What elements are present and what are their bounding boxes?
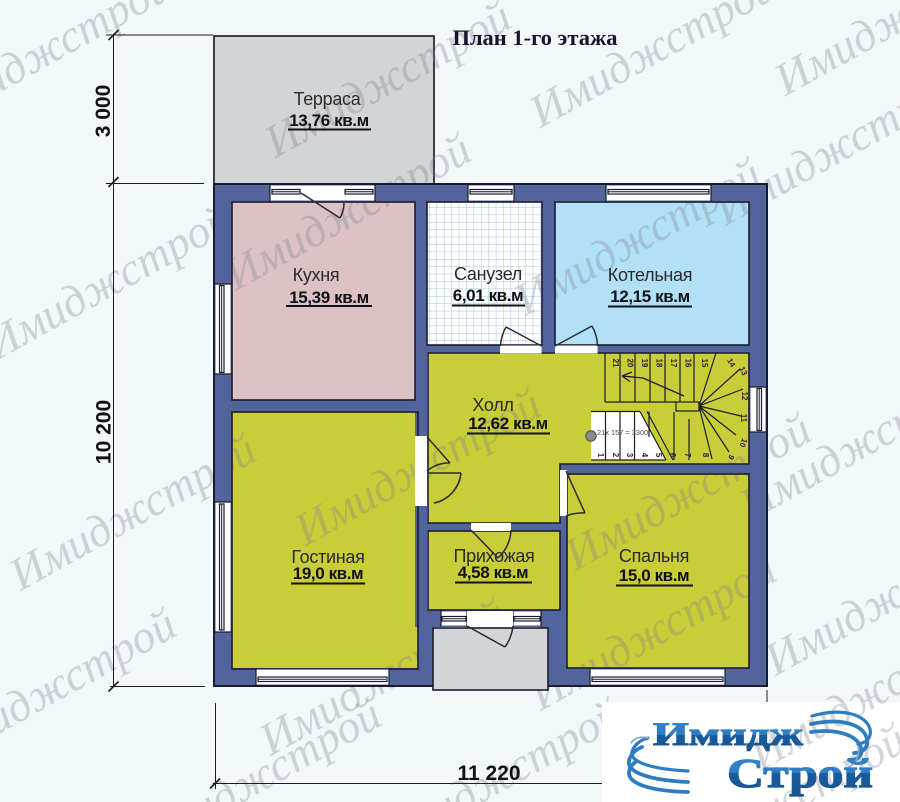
svg-text:21: 21 (611, 359, 620, 368)
svg-text:6: 6 (668, 453, 677, 458)
svg-text:4: 4 (640, 453, 649, 458)
svg-text:Кухня: Кухня (293, 265, 340, 285)
svg-text:11 220: 11 220 (457, 762, 520, 785)
svg-text:4,58 кв.м: 4,58 кв.м (458, 563, 528, 582)
svg-text:15,0 кв.м: 15,0 кв.м (619, 566, 689, 585)
svg-text:2: 2 (611, 453, 620, 458)
svg-text:17: 17 (669, 359, 678, 368)
svg-text:20: 20 (626, 359, 635, 368)
svg-text:3: 3 (625, 453, 634, 458)
svg-text:19: 19 (640, 359, 649, 368)
svg-text:План 1-го этажа: План 1-го этажа (452, 25, 617, 50)
svg-text:Санузел: Санузел (454, 264, 522, 284)
svg-text:3 000: 3 000 (92, 85, 115, 138)
svg-text:6,01 кв.м: 6,01 кв.м (453, 286, 523, 305)
svg-text:15,39 кв.м: 15,39 кв.м (289, 288, 369, 307)
svg-text:18: 18 (655, 359, 664, 368)
svg-text:8: 8 (701, 453, 710, 458)
svg-text:7: 7 (683, 453, 692, 457)
svg-text:Спальня: Спальня (619, 546, 689, 566)
svg-text:5: 5 (654, 453, 663, 458)
svg-text:Терраса: Терраса (294, 89, 362, 109)
svg-text:19,0 кв.м: 19,0 кв.м (293, 564, 363, 583)
svg-text:12,15 кв.м: 12,15 кв.м (610, 287, 690, 306)
svg-text:13,76 кв.м: 13,76 кв.м (289, 111, 369, 130)
svg-text:12,62 кв.м: 12,62 кв.м (468, 414, 548, 433)
svg-text:15: 15 (700, 359, 709, 368)
svg-text:11: 11 (739, 414, 748, 423)
svg-text:Котельная: Котельная (608, 265, 692, 285)
svg-text:16: 16 (684, 359, 693, 368)
svg-text:Строй: Строй (727, 750, 873, 796)
svg-text:10 200: 10 200 (93, 400, 116, 464)
svg-text:21x 157 = 3300: 21x 157 = 3300 (597, 428, 648, 437)
svg-text:12: 12 (740, 392, 749, 401)
svg-text:Имидж: Имидж (653, 717, 803, 753)
svg-text:Холл: Холл (472, 395, 513, 415)
svg-text:1: 1 (596, 453, 605, 458)
